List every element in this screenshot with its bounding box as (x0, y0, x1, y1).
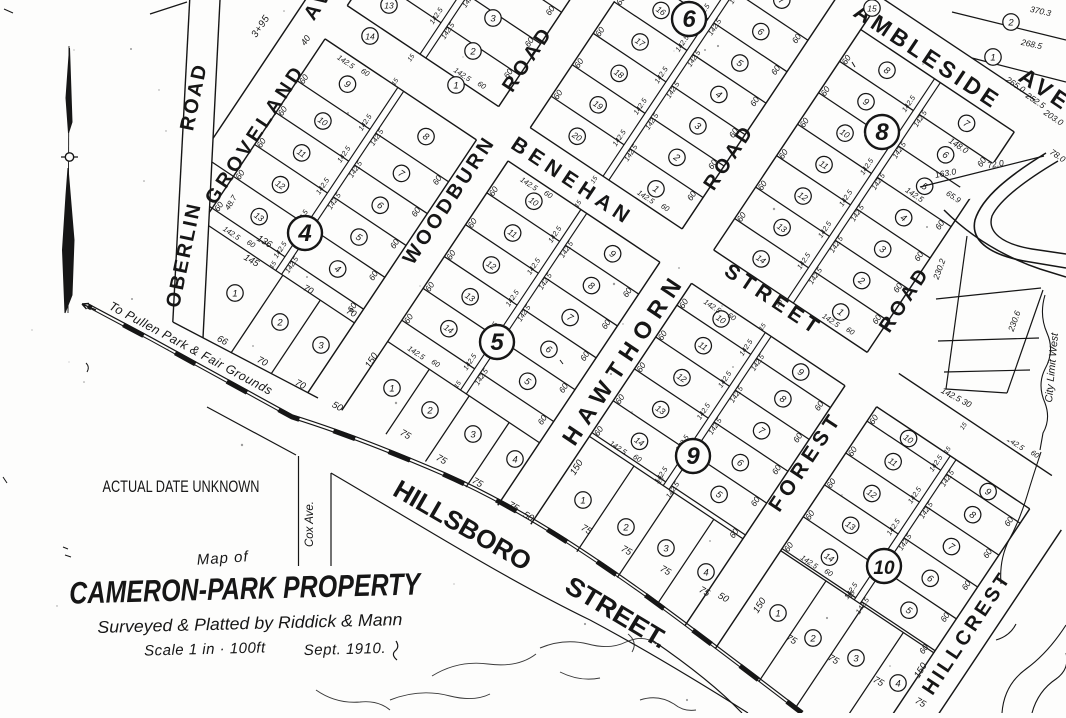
svg-text:Sept. 1910.: Sept. 1910. (304, 640, 387, 659)
svg-text:ACTUAL DATE UNKNOWN: ACTUAL DATE UNKNOWN (103, 477, 260, 496)
svg-text:5: 5 (490, 329, 504, 356)
svg-text:1: 1 (232, 288, 237, 299)
svg-text:3: 3 (663, 543, 669, 554)
svg-text:3: 3 (470, 429, 476, 440)
svg-text:4: 4 (512, 454, 517, 465)
svg-text:3: 3 (490, 13, 496, 24)
svg-text:1: 1 (453, 80, 458, 91)
svg-text:1: 1 (580, 495, 585, 506)
svg-text:Scale 1 in · 100ft: Scale 1 in · 100ft (144, 639, 266, 659)
svg-text:14: 14 (365, 31, 375, 41)
svg-text:3: 3 (853, 653, 859, 664)
svg-text:13: 13 (384, 0, 394, 10)
svg-text:6: 6 (682, 6, 696, 33)
svg-text:8: 8 (875, 119, 889, 146)
svg-text:4: 4 (703, 567, 708, 578)
svg-text:3: 3 (318, 340, 324, 351)
svg-text:1: 1 (389, 383, 394, 394)
svg-text:2: 2 (622, 522, 629, 533)
svg-text:2: 2 (809, 633, 816, 644)
svg-text:9: 9 (686, 443, 700, 470)
svg-text:15: 15 (867, 3, 877, 13)
svg-text:2: 2 (276, 317, 283, 328)
svg-text:2: 2 (469, 46, 476, 57)
svg-text:Cox Ave.: Cox Ave. (304, 501, 316, 547)
svg-text:1: 1 (775, 608, 780, 619)
svg-text:2: 2 (1007, 17, 1014, 28)
svg-text:2: 2 (426, 405, 433, 416)
svg-text:10: 10 (873, 558, 895, 579)
svg-text:1: 1 (990, 52, 995, 63)
svg-text:4: 4 (297, 220, 311, 247)
svg-text:4: 4 (895, 678, 900, 689)
